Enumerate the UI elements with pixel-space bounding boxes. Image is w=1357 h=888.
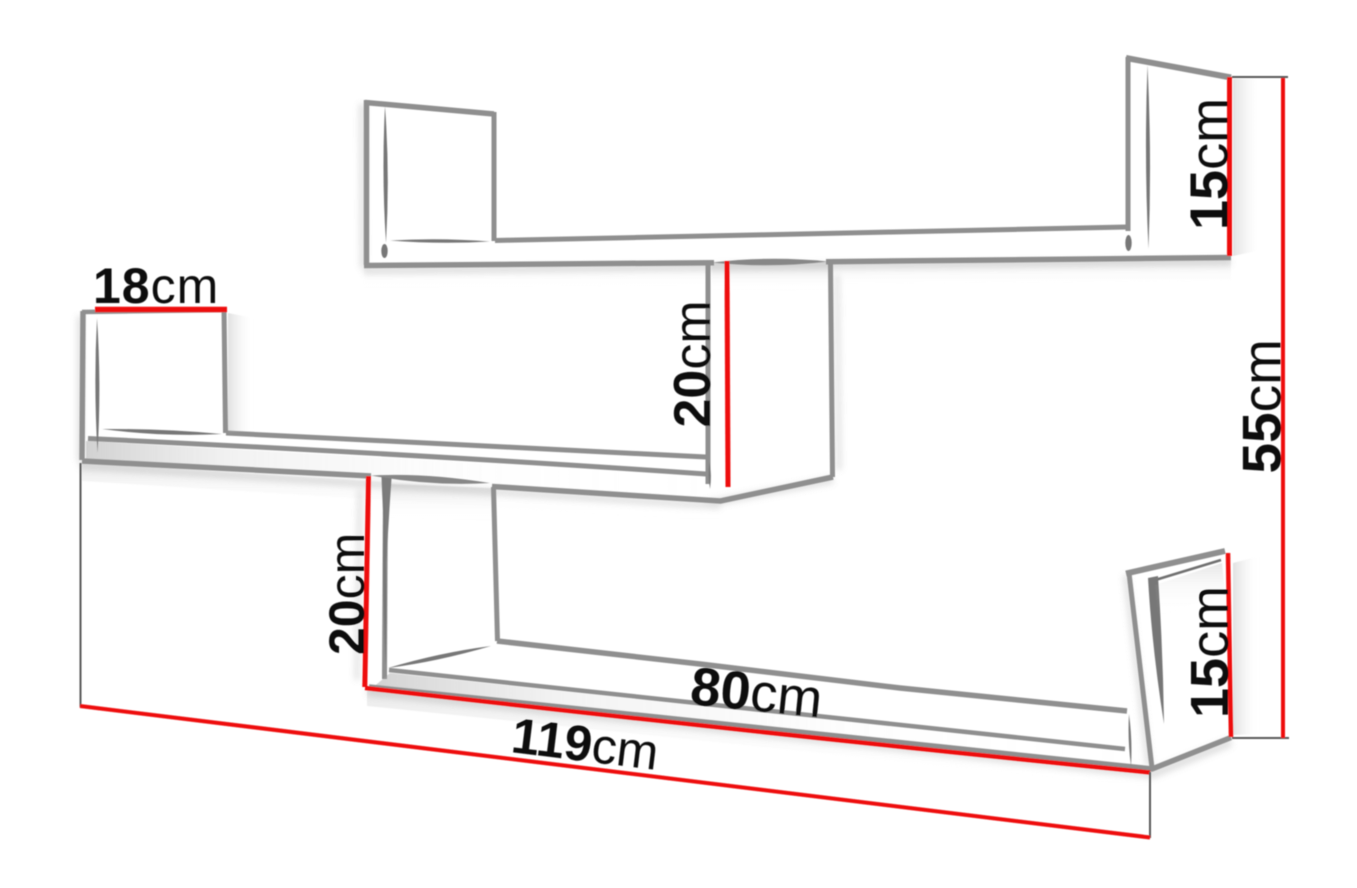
- svg-text:15cm: 15cm: [1180, 586, 1240, 718]
- svg-text:20cm: 20cm: [319, 533, 375, 655]
- svg-text:55cm: 55cm: [1231, 339, 1293, 474]
- svg-text:15cm: 15cm: [1180, 98, 1240, 230]
- svg-text:20cm: 20cm: [664, 300, 722, 427]
- svg-text:18cm: 18cm: [93, 258, 219, 314]
